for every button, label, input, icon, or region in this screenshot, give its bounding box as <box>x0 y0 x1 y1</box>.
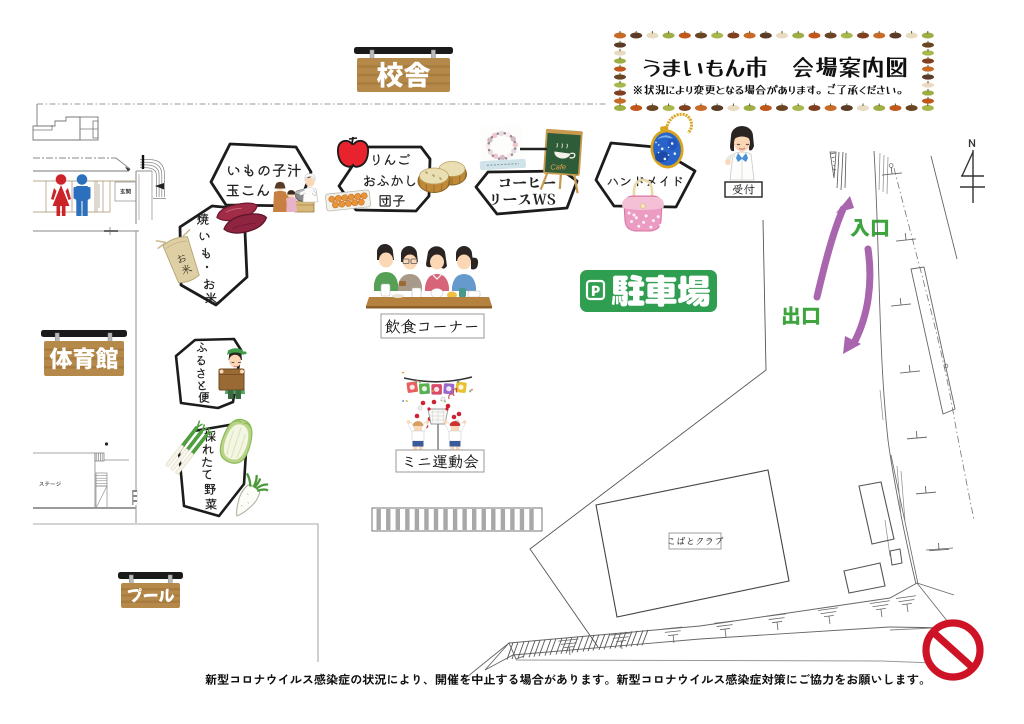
svg-text:Cafe: Cafe <box>550 162 566 172</box>
